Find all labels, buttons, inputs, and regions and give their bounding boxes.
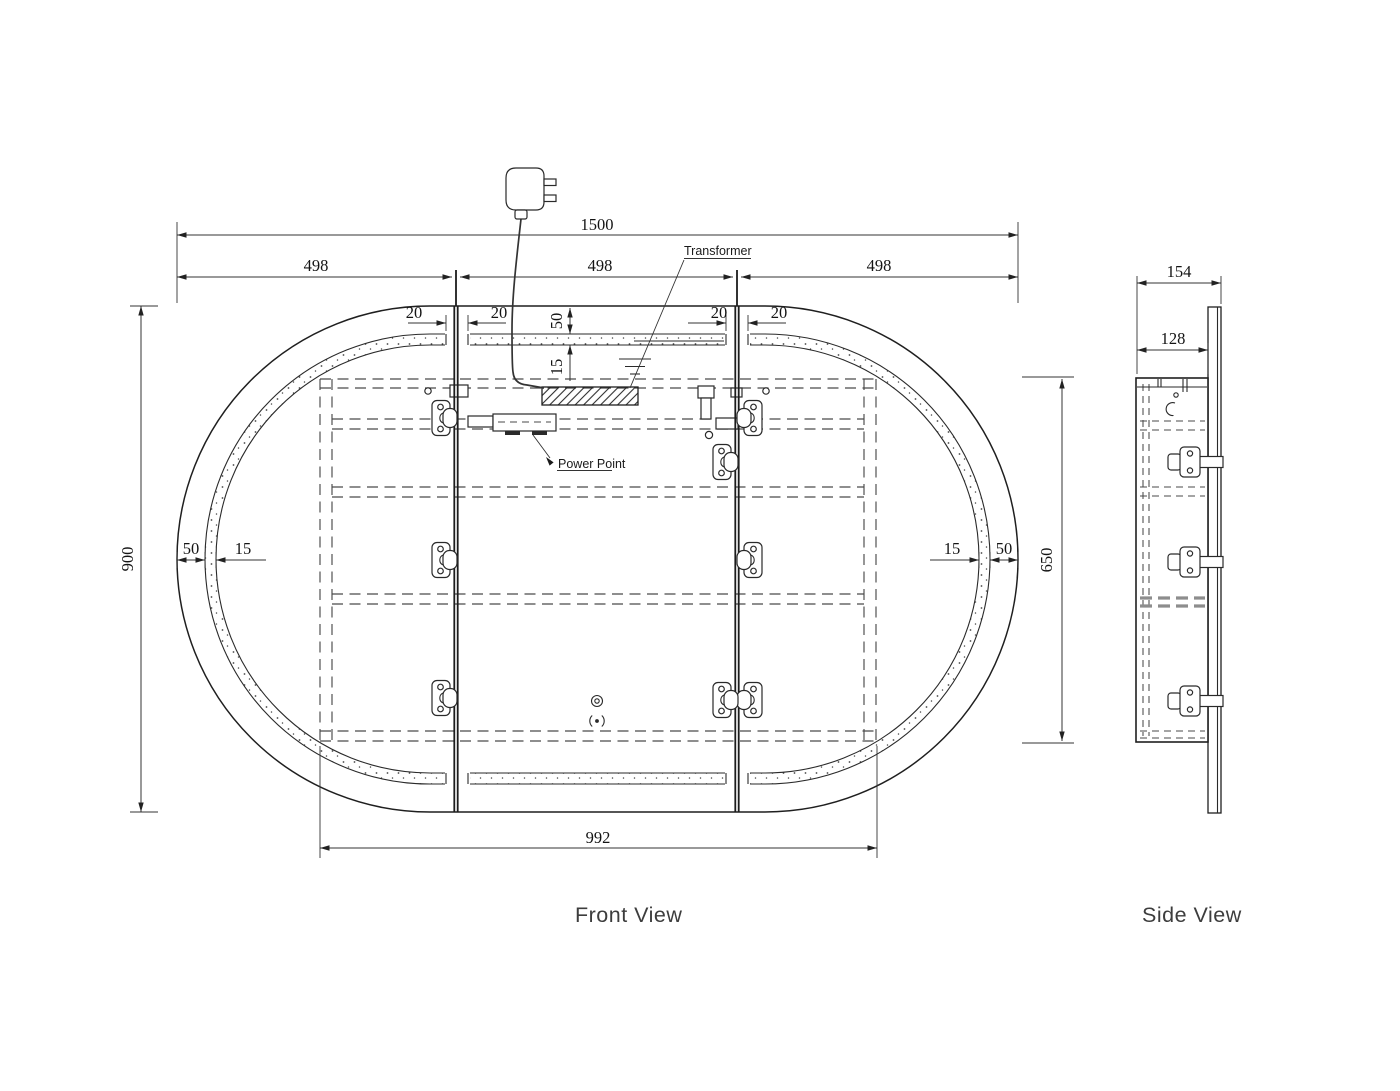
dim-text-cabinet-depth: 128 (1161, 329, 1186, 348)
transformer-label: Transformer (684, 244, 752, 258)
dim-text-total-depth: 154 (1167, 262, 1192, 281)
dim-text-door-right: 498 (867, 256, 892, 275)
hinge (432, 401, 457, 436)
electrical-fittings (425, 359, 769, 439)
technical-drawing-page: 1500 498 498 498 20 20 20 20 (0, 0, 1400, 1091)
dim-text-led-width-top: 15 (547, 359, 566, 376)
shelf-lines (332, 419, 864, 604)
power-plug-icon (506, 168, 556, 219)
dim-text-frame-right: 50 (996, 539, 1013, 558)
power-point-annotation: Power Point (533, 435, 626, 471)
door-divider-left (454, 270, 457, 812)
transformer-box (542, 387, 638, 405)
dim-text-overall-height: 900 (118, 547, 137, 572)
hinge (432, 543, 457, 578)
dim-text-gap: 20 (491, 303, 508, 322)
front-view-drawing: 1500 498 498 498 20 20 20 20 (118, 168, 1074, 927)
dim-door-gaps-left: 20 20 (406, 303, 508, 331)
dim-frame-right: 15 50 (930, 539, 1018, 568)
conduit-pipe-right-vertical (701, 398, 711, 419)
hinge (713, 445, 738, 480)
dim-text-cabinet-height: 650 (1037, 548, 1056, 573)
hinge (432, 681, 457, 716)
power-point-label: Power Point (558, 457, 626, 471)
dim-door-widths: 498 498 498 (177, 256, 1018, 277)
dim-text-gap: 20 (406, 303, 423, 322)
hinge (737, 683, 762, 718)
dim-text-gap: 20 (711, 303, 728, 322)
mirror-cabinet-drawing: 1500 498 498 498 20 20 20 20 (0, 0, 1400, 1091)
dim-text-led-left: 15 (235, 539, 252, 558)
side-view-title: Side View (1142, 903, 1242, 927)
conduit-fitting-right (698, 386, 714, 398)
ground-symbol (619, 359, 651, 374)
demister-sensor-icon (590, 716, 604, 727)
touch-sensor-icon (592, 696, 603, 707)
hinge (737, 401, 762, 436)
hinge (713, 683, 738, 718)
hinge (737, 543, 762, 578)
side-view-drawing: 154 128 Side View (1136, 262, 1242, 927)
front-view-title: Front View (575, 903, 682, 927)
dim-door-gaps-right: 20 20 (688, 303, 787, 331)
dim-cabinet-height: 650 (1022, 377, 1074, 743)
dim-text-led-right: 15 (944, 539, 961, 558)
dim-frame-left: 50 15 (177, 539, 266, 568)
dim-led-offset-top: 50 (547, 308, 570, 334)
leader-arrowhead (546, 457, 554, 466)
conduit-pipe-left (468, 416, 493, 427)
transformer-annotation: Transformer (630, 244, 752, 388)
screw-hole (425, 388, 431, 394)
dim-text-door-mid: 498 (588, 256, 613, 275)
screw-hole (763, 388, 769, 394)
dim-side-cabinet-depth: 128 (1137, 329, 1208, 374)
dim-text-gap: 20 (771, 303, 788, 322)
screw-hole (705, 431, 712, 438)
power-cable (512, 219, 544, 388)
dim-text-cabinet-width: 992 (586, 828, 611, 847)
door-divider-right (735, 270, 738, 812)
dim-text-door-left: 498 (304, 256, 329, 275)
dim-text-frame-left: 50 (183, 539, 200, 558)
divider-fitting (731, 388, 742, 397)
power-point-box (493, 414, 556, 435)
dim-overall-height: 900 (118, 306, 158, 812)
dim-text-overall-width: 1500 (581, 215, 614, 234)
dim-text-frame-offset-top: 50 (547, 313, 566, 330)
conduit-fitting-left (450, 385, 468, 397)
dim-led-inset-top: 15 (547, 345, 570, 381)
dim-cabinet-width: 992 (320, 746, 877, 858)
cabinet-dashed-outline (320, 379, 876, 741)
